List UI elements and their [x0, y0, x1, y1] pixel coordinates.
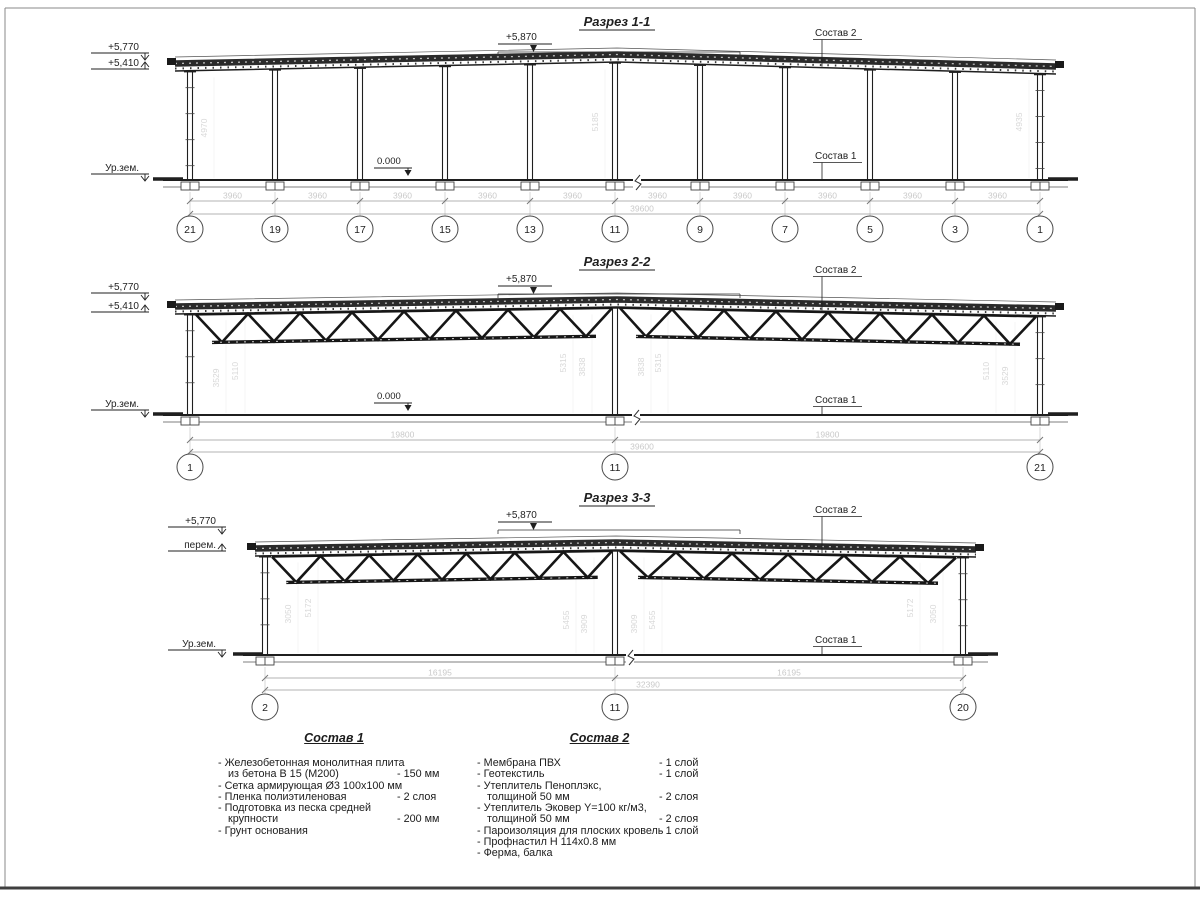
composition-text: - Утеплитель Пеноплэкс, [477, 780, 602, 792]
composition-line: - Грунт основания [218, 826, 450, 837]
composition-text: - Ферма, балка [477, 847, 552, 859]
composition-value: - 200 мм [397, 814, 439, 825]
composition-value: - 1 слой [659, 769, 698, 780]
composition-text: толщиной 50 мм [487, 791, 570, 803]
composition-line: - Ферма, балка [477, 848, 722, 859]
composition-text: - Сетка армирующая Ø3 100х100 мм [218, 780, 402, 792]
composition-text: - Пароизоляция для плоских кровель [477, 825, 663, 837]
composition-value: - 2 слоя [659, 792, 698, 803]
composition-title: Состав 1 [218, 731, 450, 745]
composition-text: толщиной 50 мм [487, 813, 570, 825]
composition-value: - 150 мм [397, 769, 439, 780]
compositions-area: Состав 1- Железобетонная монолитная плит… [0, 0, 1200, 900]
composition-text: - Профнастил Н 114х0.8 мм [477, 836, 616, 848]
composition-text: - Мембрана ПВХ [477, 757, 561, 769]
composition-text: - Утеплитель Эковер Y=100 кг/м3, [477, 802, 647, 814]
composition-value: - 2 слоя [397, 792, 436, 803]
drawing-sheet: 4970518549353960396039603960396039603960… [0, 0, 1200, 900]
composition-text: - Геотекстиль [477, 768, 544, 780]
composition-text: - Пленка полиэтиленовая [218, 791, 347, 803]
composition-value: - 1 слой [659, 826, 698, 837]
composition-title: Состав 2 [477, 731, 722, 745]
composition-text: - Грунт основания [218, 825, 308, 837]
composition-text: - Подготовка из песка средней [218, 802, 371, 814]
composition-block: Состав 2- Мембрана ПВХ- 1 слой- Геотекст… [477, 731, 722, 860]
composition-text: - Железобетонная монолитная плита [218, 757, 405, 769]
composition-block: Состав 1- Железобетонная монолитная плит… [218, 731, 450, 837]
composition-text: крупности [228, 813, 278, 825]
composition-text: из бетона В 15 (М200) [228, 768, 339, 780]
